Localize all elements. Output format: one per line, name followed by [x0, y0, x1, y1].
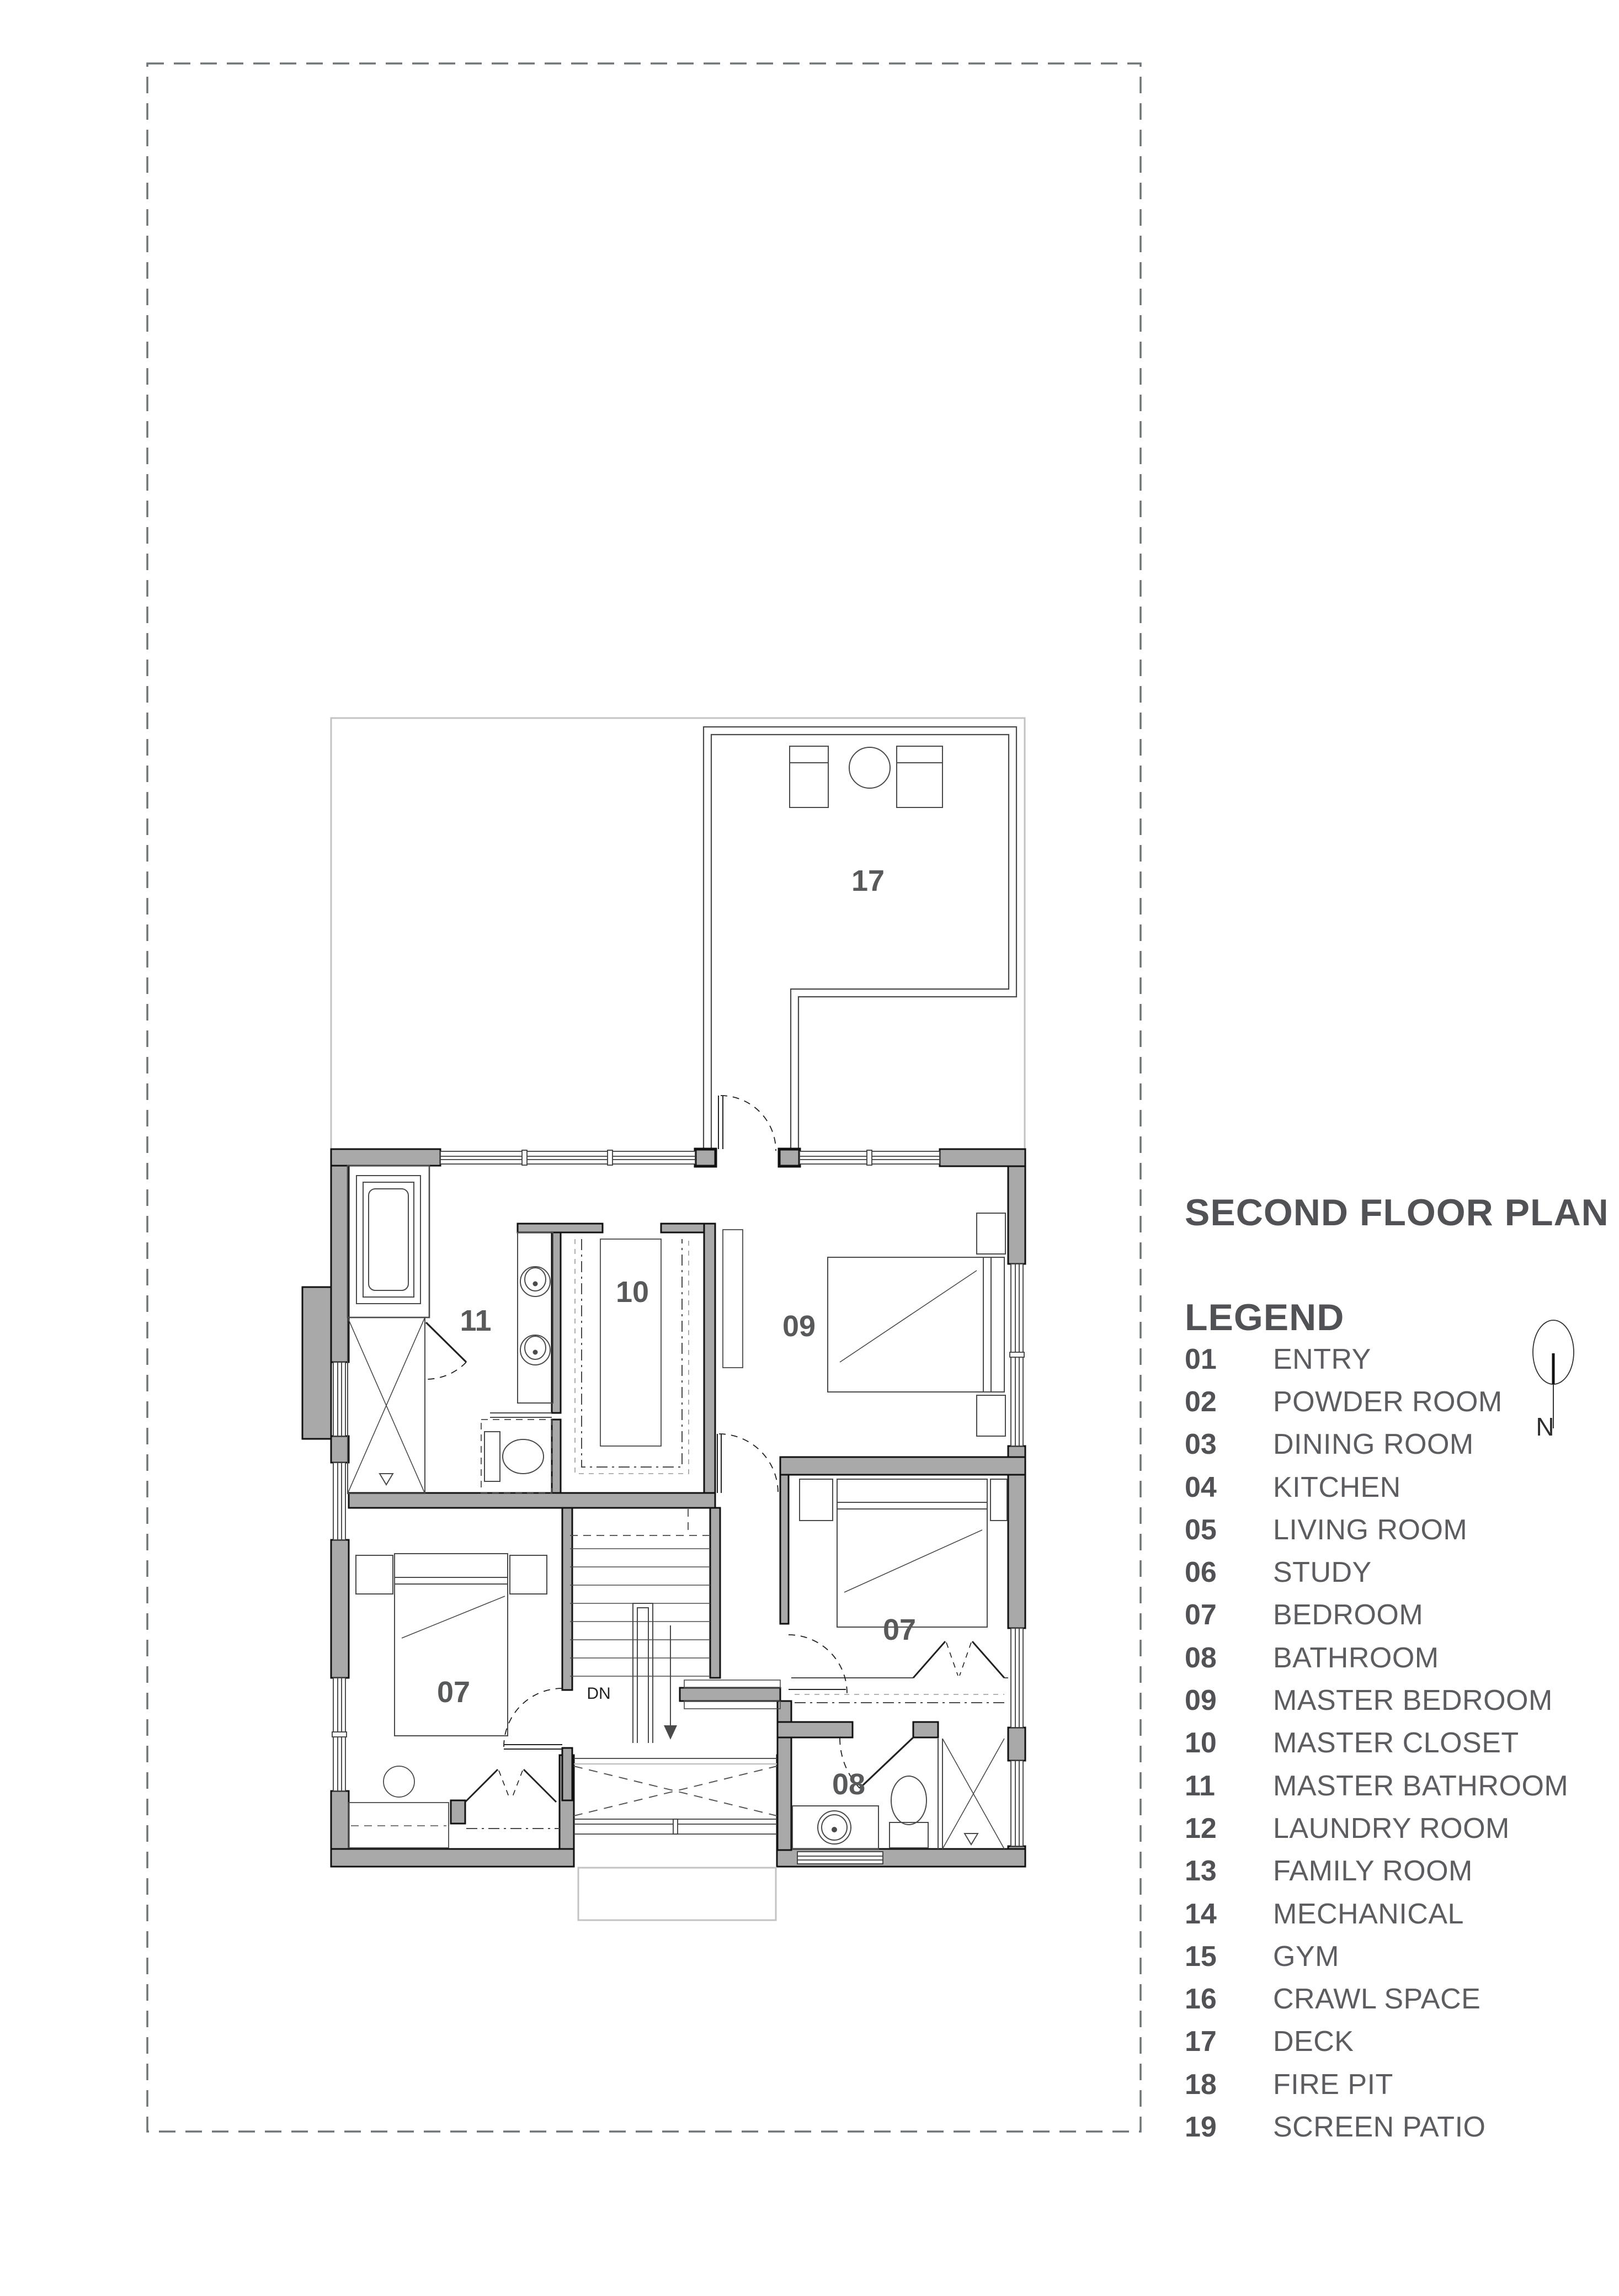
legend-row-label: SCREEN PATIO — [1273, 2111, 1485, 2144]
niche-stub — [451, 1800, 465, 1824]
stair-rail — [633, 1603, 653, 1743]
legend-row-number: 17 — [1185, 2025, 1273, 2058]
legend-row-number: 12 — [1185, 1812, 1273, 1845]
window — [332, 1678, 347, 1791]
legend-row: 07BEDROOM — [1185, 1594, 1604, 1636]
legend-row-number: 16 — [1185, 1983, 1273, 2016]
room-labels: 17 11 10 09 07 07 08 DN — [437, 864, 916, 1801]
legend-row: 05LIVING ROOM — [1185, 1508, 1604, 1551]
legend-row-label: DECK — [1273, 2025, 1354, 2058]
door-bedroom-right — [789, 1635, 847, 1693]
vanity — [518, 1232, 553, 1403]
legend-row: 14MECHANICAL — [1185, 1893, 1604, 1935]
wall-bumpout — [302, 1287, 331, 1439]
window — [1010, 1264, 1024, 1446]
bed-master — [828, 1213, 1005, 1436]
legend-row-label: GYM — [1273, 1940, 1339, 1973]
legend-list: 01ENTRY02POWDER ROOM03DINING ROOM04KITCH… — [1185, 1338, 1604, 2149]
legend-row-number: 10 — [1185, 1726, 1273, 1760]
deck-chair — [790, 746, 828, 807]
nightstand — [510, 1555, 547, 1594]
legend-row-label: STUDY — [1273, 1556, 1372, 1589]
toilet-tank — [484, 1432, 500, 1481]
room-label-master-bedroom: 09 — [782, 1310, 816, 1343]
shelf — [684, 1701, 780, 1709]
deck-chair — [897, 746, 942, 807]
nightstand — [356, 1555, 393, 1594]
legend-row-label: POWDER ROOM — [1273, 1385, 1503, 1418]
legend-row-number: 13 — [1185, 1854, 1273, 1888]
legend-row: 04KITCHEN — [1185, 1466, 1604, 1508]
door-master-suite — [717, 1434, 778, 1493]
deck-outline — [704, 727, 1016, 1149]
room-label-bedroom-right: 07 — [883, 1613, 916, 1646]
window — [440, 1150, 695, 1165]
drain-icon — [965, 1833, 978, 1845]
recess-open-below — [574, 1758, 777, 1920]
room-label-master-bathroom: 11 — [460, 1304, 491, 1337]
stair-arrow — [664, 1625, 677, 1740]
drain-icon — [380, 1474, 393, 1485]
stairs — [570, 1509, 710, 1743]
legend-row-number: 07 — [1185, 1598, 1273, 1631]
legend-row: 11MASTER BATHROOM — [1185, 1764, 1604, 1807]
stairs-dn-label: DN — [587, 1684, 610, 1703]
legend-row: 09MASTER BEDROOM — [1185, 1679, 1604, 1721]
window — [333, 1362, 345, 1436]
property-boundary — [147, 63, 1141, 2132]
window — [797, 1852, 883, 1864]
legend-row-label: CRAWL SPACE — [1273, 1983, 1480, 2016]
legend-row-label: BEDROOM — [1273, 1598, 1423, 1631]
bath-vanity — [792, 1806, 878, 1849]
closet-right-bedroom — [791, 1678, 1008, 1703]
legend-row: 10MASTER CLOSET — [1185, 1722, 1604, 1764]
bathtub — [348, 1166, 429, 1317]
room-label-bathroom: 08 — [832, 1768, 865, 1801]
legend-row-number: 06 — [1185, 1556, 1273, 1589]
closet-rods — [575, 1239, 689, 1474]
legend-row-label: ENTRY — [1273, 1343, 1371, 1376]
double-door-closet-left — [465, 1769, 556, 1802]
bed-right — [800, 1479, 1007, 1627]
room-label-master-closet: 10 — [616, 1275, 649, 1309]
footprint-outline — [331, 718, 1025, 1149]
legend-row-number: 05 — [1185, 1513, 1273, 1546]
toilet — [890, 1776, 928, 1848]
legend-row-label: MASTER BATHROOM — [1273, 1769, 1568, 1803]
door-bedroom-left — [504, 1688, 562, 1749]
window — [1011, 1761, 1023, 1846]
legend-row-number: 14 — [1185, 1898, 1273, 1931]
deck-table — [849, 747, 890, 788]
legend-heading: LEGEND — [1185, 1296, 1344, 1339]
window — [574, 1819, 777, 1834]
nightstand — [800, 1479, 833, 1521]
chair — [384, 1766, 414, 1797]
legend-row-number: 15 — [1185, 1940, 1273, 1973]
legend-row-label: MASTER BEDROOM — [1273, 1684, 1553, 1717]
legend-row-number: 03 — [1185, 1428, 1273, 1461]
legend-row: 08BATHROOM — [1185, 1636, 1604, 1679]
nightstand — [990, 1479, 1007, 1521]
room-label-deck: 17 — [851, 864, 885, 897]
legend-row-label: LAUNDRY ROOM — [1273, 1812, 1510, 1845]
door-deck — [718, 1096, 776, 1151]
room-label-bedroom-left: 07 — [437, 1676, 470, 1709]
legend-row: 02POWDER ROOM — [1185, 1380, 1604, 1423]
legend-row: 19SCREEN PATIO — [1185, 2106, 1604, 2148]
legend-row-number: 01 — [1185, 1343, 1273, 1376]
double-door-closet-right — [913, 1641, 1004, 1678]
legend-row-number: 11 — [1185, 1769, 1273, 1803]
window — [800, 1150, 940, 1165]
legend-row: 17DECK — [1185, 2021, 1604, 2063]
toilet-bowl — [503, 1439, 544, 1474]
drawing-sheet: 17 11 10 09 07 07 08 DN N SECOND FLOOR P… — [0, 0, 1619, 2296]
legend-row: 15GYM — [1185, 1935, 1604, 1978]
legend-row: 16CRAWL SPACE — [1185, 1978, 1604, 2020]
legend-row-label: MECHANICAL — [1273, 1898, 1464, 1931]
legend-row: 01ENTRY — [1185, 1338, 1604, 1380]
roof-below-outline — [578, 1868, 776, 1920]
window — [1011, 1628, 1023, 1728]
legend-row: 12LAUNDRY ROOM — [1185, 1807, 1604, 1849]
legend-row: 03DINING ROOM — [1185, 1423, 1604, 1466]
legend-row: 13FAMILY ROOM — [1185, 1850, 1604, 1893]
legend-row-label: KITCHEN — [1273, 1471, 1401, 1504]
window — [333, 1463, 345, 1540]
water-closet — [481, 1420, 552, 1493]
nightstand — [977, 1395, 1005, 1436]
legend-row-number: 04 — [1185, 1471, 1273, 1504]
shower — [938, 1739, 1004, 1849]
legend-row-number: 18 — [1185, 2068, 1273, 2101]
legend-row-number: 02 — [1185, 1385, 1273, 1418]
legend-row-label: DINING ROOM — [1273, 1428, 1474, 1461]
legend-row-label: MASTER CLOSET — [1273, 1726, 1519, 1760]
legend-row-label: FAMILY ROOM — [1273, 1854, 1473, 1888]
dresser — [723, 1230, 743, 1368]
page-title: SECOND FLOOR PLAN — [1185, 1191, 1609, 1234]
legend-row: 18FIRE PIT — [1185, 2063, 1604, 2106]
legend-row-label: BATHROOM — [1273, 1641, 1439, 1675]
legend-row-number: 19 — [1185, 2111, 1273, 2144]
shelf — [684, 1680, 780, 1688]
deck-furniture — [790, 746, 942, 807]
legend-row-number: 08 — [1185, 1641, 1273, 1675]
nightstand — [977, 1213, 1005, 1254]
shower — [348, 1317, 425, 1494]
legend-row-number: 09 — [1185, 1684, 1273, 1717]
legend-row-label: LIVING ROOM — [1273, 1513, 1467, 1546]
legend-row: 06STUDY — [1185, 1551, 1604, 1593]
legend-row-label: FIRE PIT — [1273, 2068, 1393, 2101]
window-seat — [349, 1803, 449, 1848]
